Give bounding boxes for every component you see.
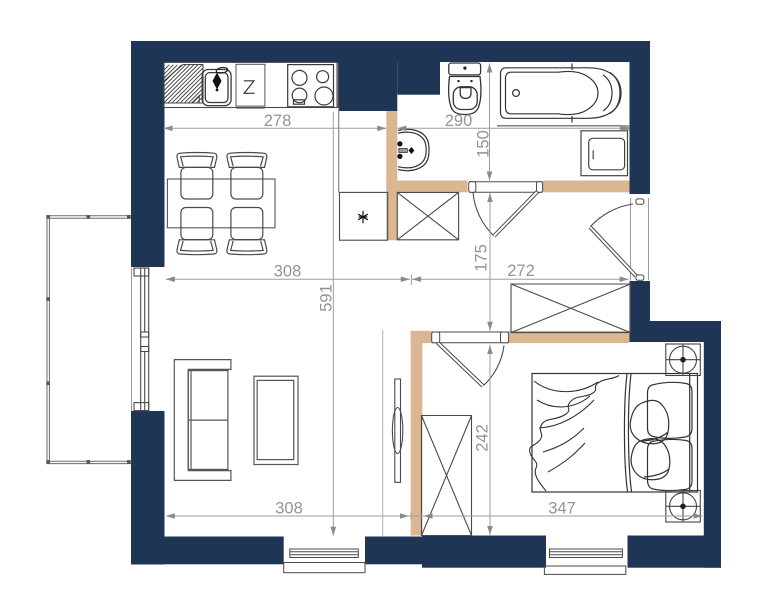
svg-text:272: 272 <box>507 262 535 280</box>
svg-text:290: 290 <box>445 112 473 130</box>
svg-text:308: 308 <box>275 500 303 518</box>
svg-text:591: 591 <box>318 284 336 312</box>
svg-text:242: 242 <box>474 424 492 452</box>
svg-text:278: 278 <box>264 112 292 130</box>
svg-text:347: 347 <box>548 500 576 518</box>
svg-text:175: 175 <box>473 244 491 272</box>
svg-text:308: 308 <box>274 263 302 281</box>
svg-text:150: 150 <box>475 130 493 158</box>
